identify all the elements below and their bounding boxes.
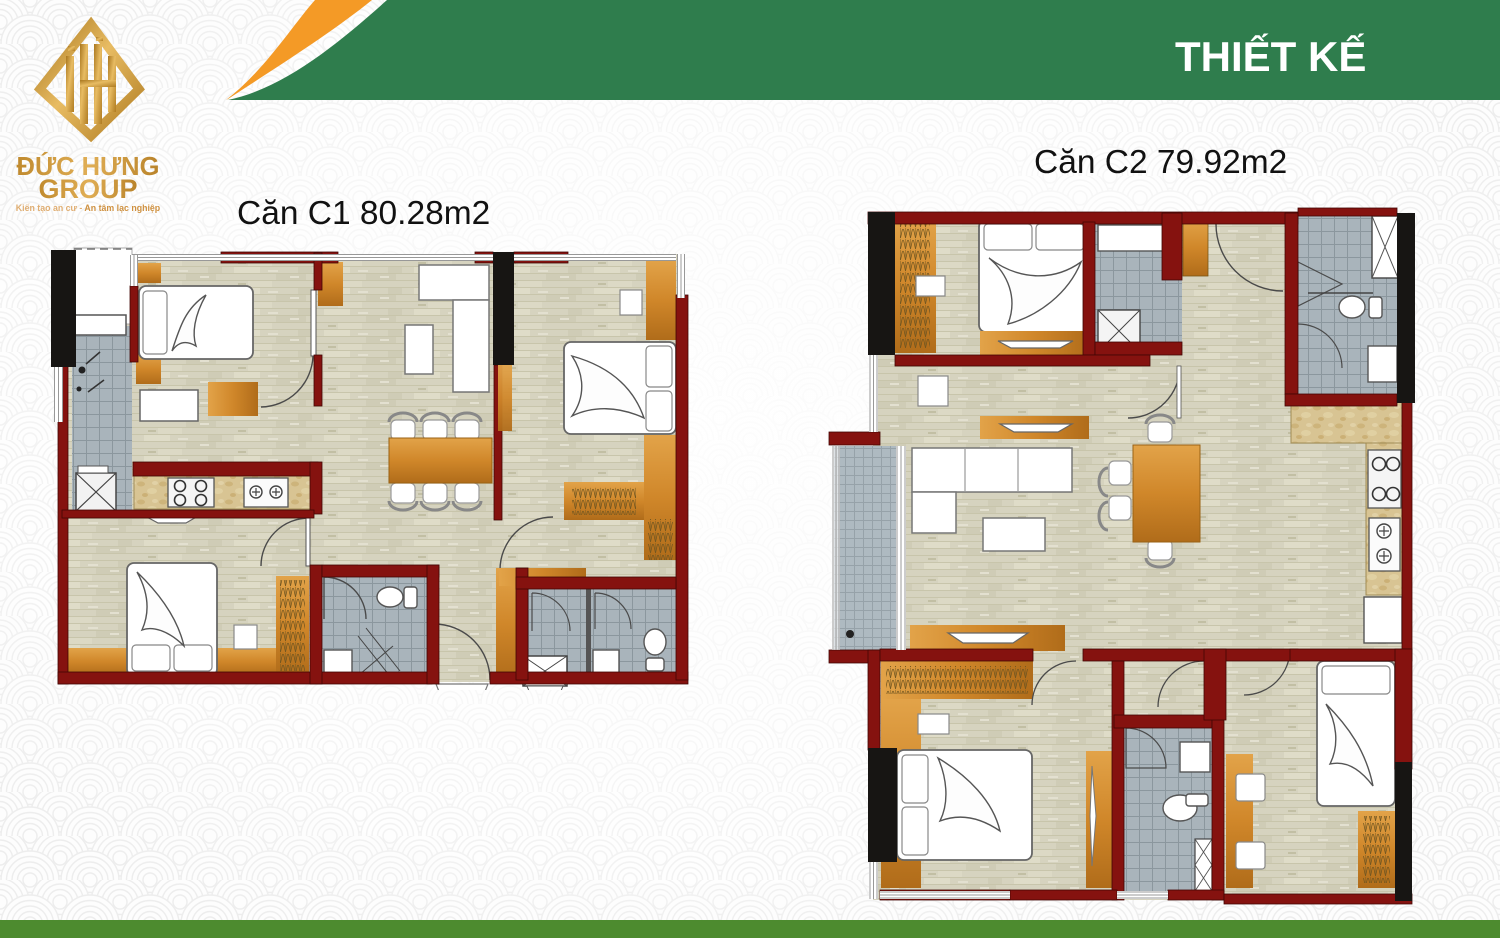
svg-text:Kiến tạo an cư - An tâm lạc ng: Kiến tạo an cư - An tâm lạc nghiệp [16,203,161,213]
svg-text:GROUP: GROUP [38,174,137,204]
